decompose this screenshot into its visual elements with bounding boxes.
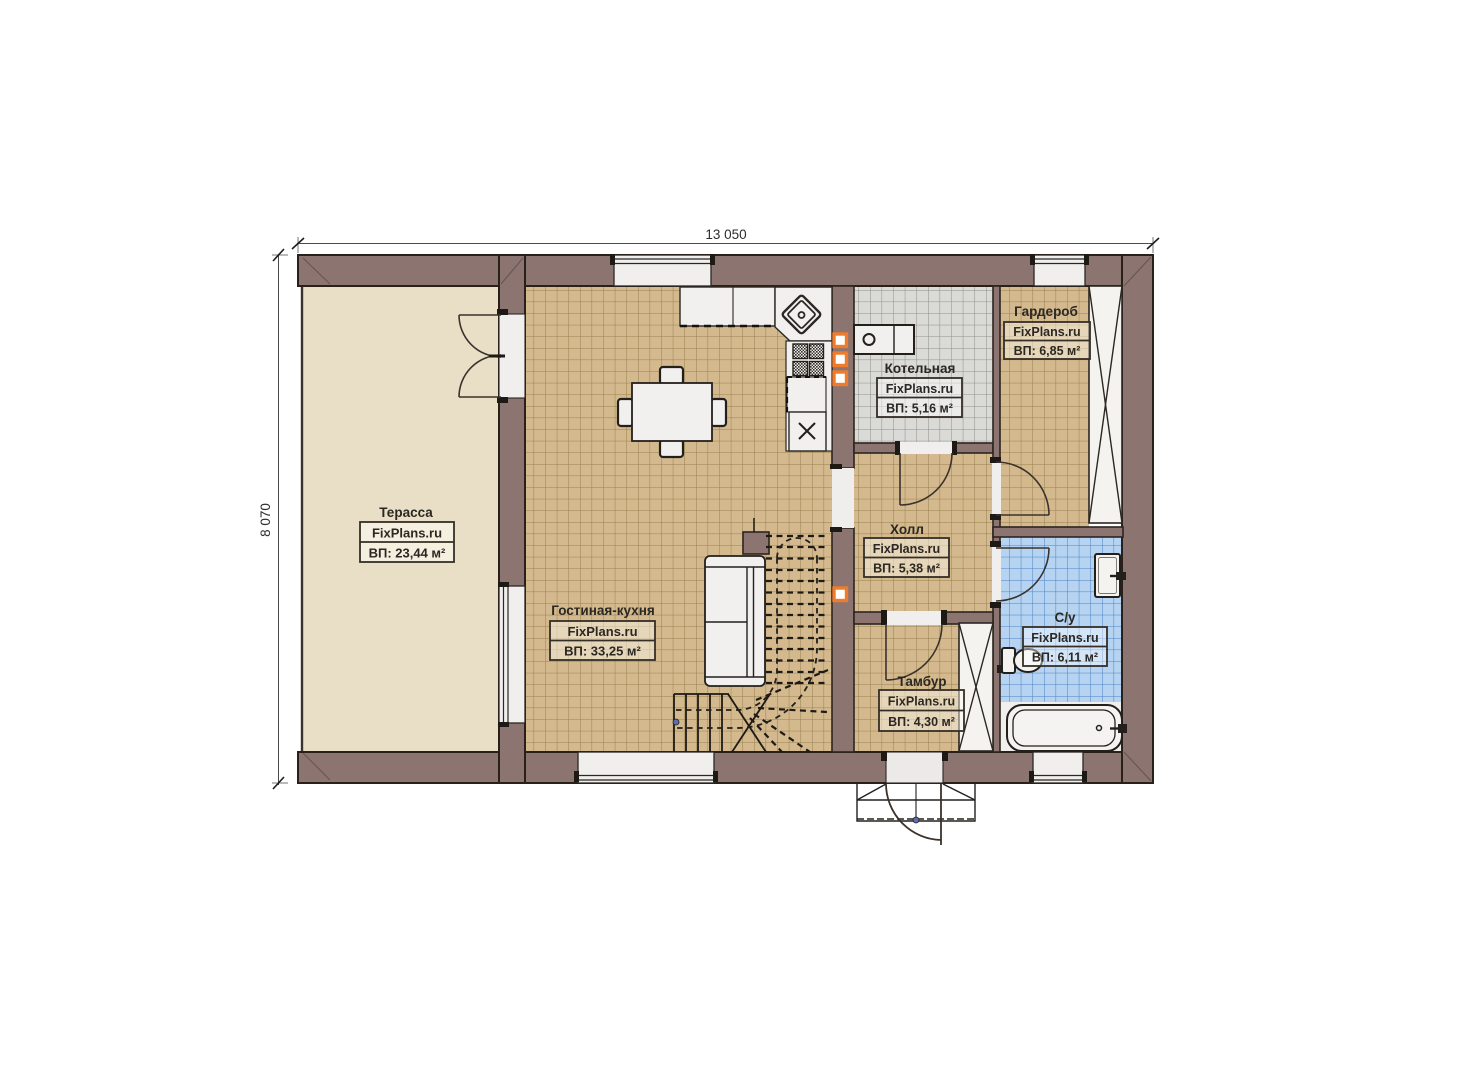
svg-text:FixPlans.ru: FixPlans.ru — [567, 624, 637, 639]
svg-text:Гардероб: Гардероб — [1014, 304, 1078, 319]
svg-text:ВП: 6,85 м²: ВП: 6,85 м² — [1014, 344, 1081, 358]
svg-text:ВП: 6,11 м²: ВП: 6,11 м² — [1032, 651, 1098, 665]
svg-text:FixPlans.ru: FixPlans.ru — [888, 695, 955, 709]
svg-text:ВП: 23,44 м²: ВП: 23,44 м² — [369, 546, 446, 561]
svg-text:С/у: С/у — [1054, 610, 1076, 625]
svg-text:ВП: 5,38 м²: ВП: 5,38 м² — [873, 562, 940, 576]
svg-text:Терасса: Терасса — [379, 505, 433, 520]
svg-text:FixPlans.ru: FixPlans.ru — [873, 542, 940, 556]
svg-text:Гостиная-кухня: Гостиная-кухня — [551, 603, 654, 618]
svg-text:Холл: Холл — [890, 522, 924, 537]
svg-text:13 050: 13 050 — [705, 227, 746, 242]
svg-text:ВП: 4,30 м²: ВП: 4,30 м² — [888, 715, 955, 729]
svg-text:FixPlans.ru: FixPlans.ru — [1031, 631, 1098, 645]
svg-text:FixPlans.ru: FixPlans.ru — [886, 382, 953, 396]
svg-text:FixPlans.ru: FixPlans.ru — [372, 526, 442, 541]
svg-text:FixPlans.ru: FixPlans.ru — [1013, 325, 1080, 339]
svg-text:Тамбур: Тамбур — [898, 674, 947, 689]
svg-text:ВП: 33,25 м²: ВП: 33,25 м² — [564, 644, 641, 659]
svg-text:Котельная: Котельная — [885, 361, 956, 376]
svg-text:ВП: 5,16 м²: ВП: 5,16 м² — [886, 402, 953, 416]
svg-text:8 070: 8 070 — [258, 503, 273, 537]
